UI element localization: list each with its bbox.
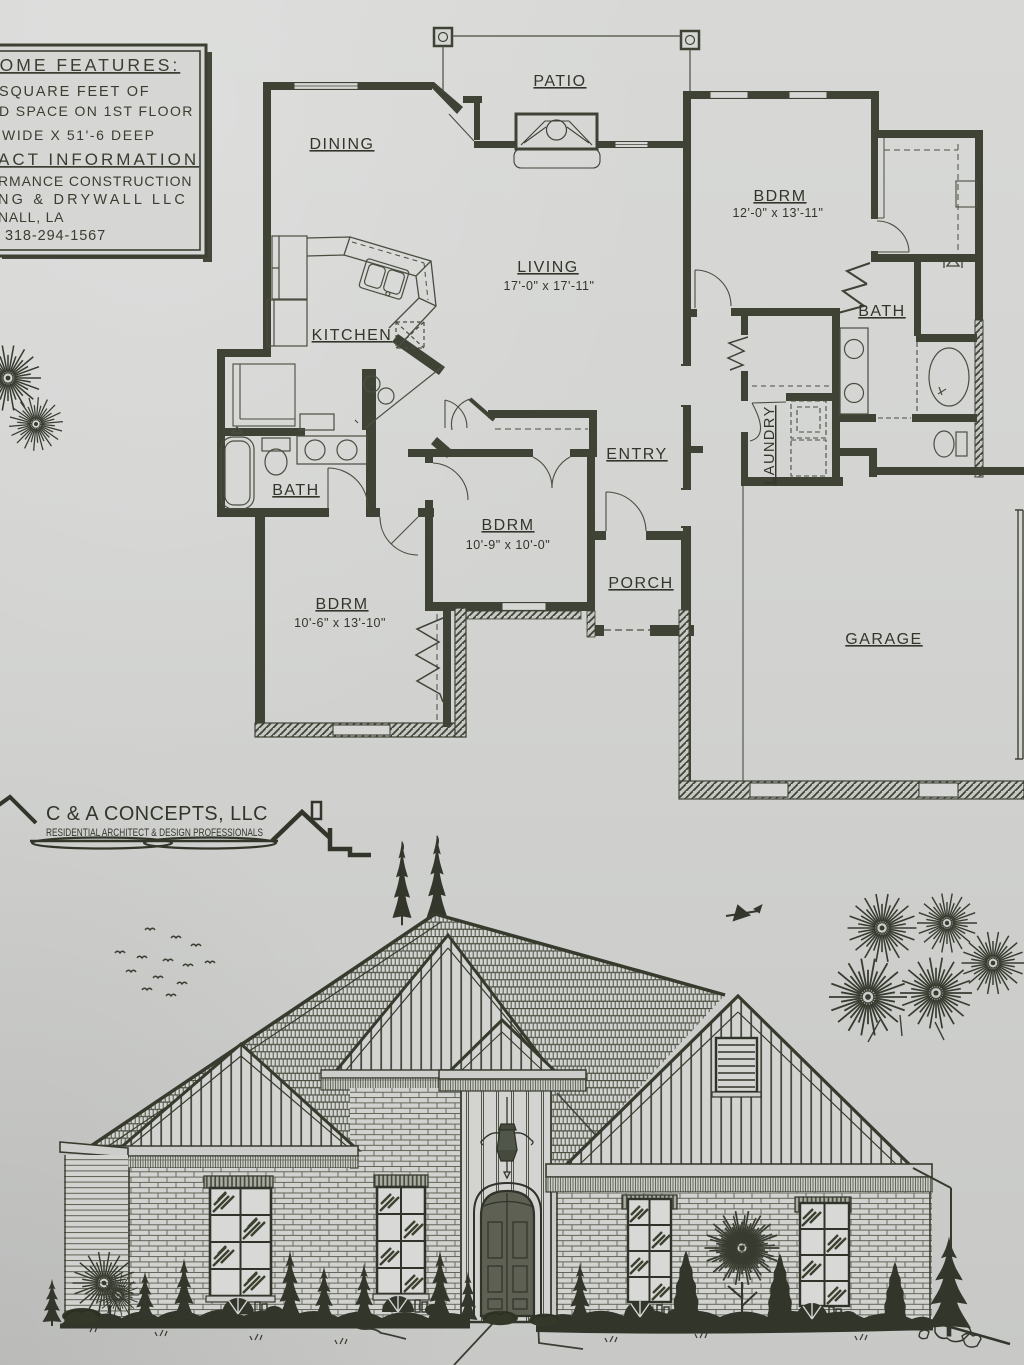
svg-text:PORCH: PORCH xyxy=(608,575,673,592)
svg-text:12'-0" x 13'-11": 12'-0" x 13'-11" xyxy=(733,206,824,220)
svg-text:KITCHEN: KITCHEN xyxy=(312,327,393,344)
svg-text:SQUARE FEET OF: SQUARE FEET OF xyxy=(0,84,150,100)
svg-text:HOME FEATURES:: HOME FEATURES: xyxy=(0,55,180,75)
svg-text:BATH: BATH xyxy=(272,482,319,499)
svg-text:LAUNDRY: LAUNDRY xyxy=(762,405,778,485)
svg-text:10'-9" x 10'-0": 10'-9" x 10'-0" xyxy=(466,538,550,552)
svg-text:RMANCE CONSTRUCTION: RMANCE CONSTRUCTION xyxy=(0,173,192,189)
svg-text:318-294-1567: 318-294-1567 xyxy=(5,228,106,244)
svg-text:ACT INFORMATION: ACT INFORMATION xyxy=(0,150,199,169)
svg-text:10'-6" x 13'-10": 10'-6" x 13'-10" xyxy=(294,616,386,630)
svg-text:NG & DRYWALL LLC: NG & DRYWALL LLC xyxy=(0,192,188,208)
svg-text:NALL, LA: NALL, LA xyxy=(0,209,64,225)
svg-text:D SPACE ON 1ST FLOOR: D SPACE ON 1ST FLOOR xyxy=(0,103,194,119)
svg-text:GARAGE: GARAGE xyxy=(845,631,922,648)
svg-text:WIDE X 51'-6 DEEP: WIDE X 51'-6 DEEP xyxy=(2,127,156,143)
svg-text:RESIDENTIAL ARCHITECT & DESIGN: RESIDENTIAL ARCHITECT & DESIGN PROFESSIO… xyxy=(46,827,263,839)
svg-text:BDRM: BDRM xyxy=(315,596,368,613)
svg-text:PATIO: PATIO xyxy=(533,73,586,90)
svg-text:BDRM: BDRM xyxy=(753,188,806,205)
svg-text:C & A CONCEPTS, LLC: C & A CONCEPTS, LLC xyxy=(46,803,268,825)
svg-text:BDRM: BDRM xyxy=(481,517,534,534)
svg-text:DINING: DINING xyxy=(310,136,375,153)
svg-text:BATH: BATH xyxy=(858,303,905,320)
svg-text:LIVING: LIVING xyxy=(517,259,578,276)
svg-text:ENTRY: ENTRY xyxy=(606,446,667,463)
svg-text:17'-0" x 17'-11": 17'-0" x 17'-11" xyxy=(504,279,595,293)
